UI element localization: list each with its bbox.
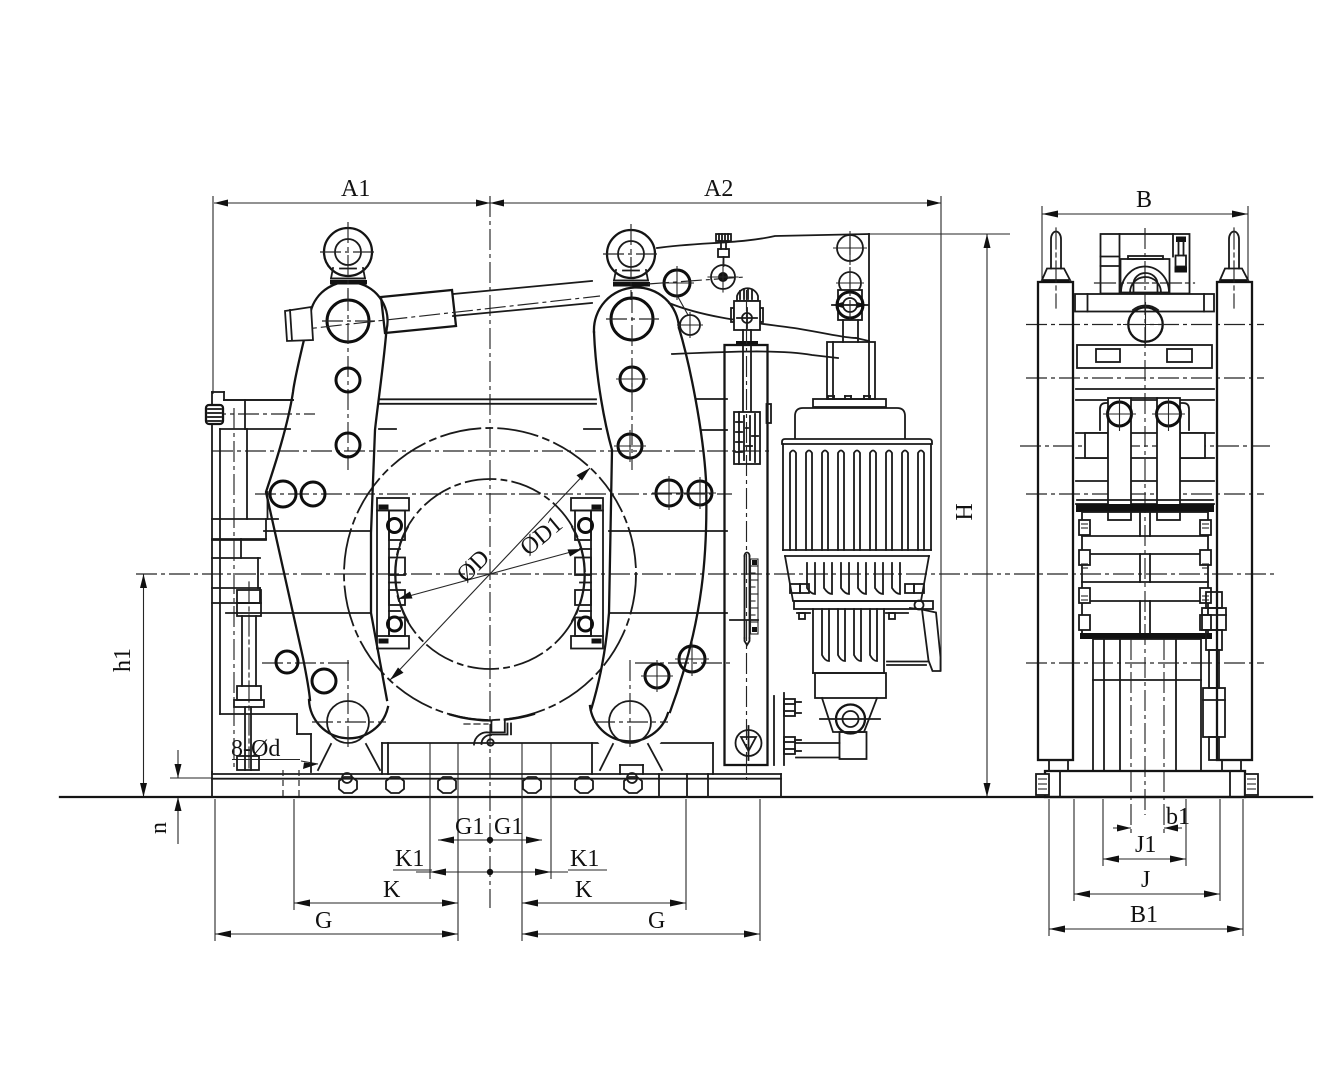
svg-text:K: K [575,877,593,903]
svg-text:B1: B1 [1130,902,1158,928]
svg-text:A2: A2 [704,176,733,202]
svg-text:n: n [146,822,172,834]
svg-text:G1: G1 [494,814,523,840]
svg-text:J: J [1141,867,1150,893]
svg-text:8-Ød: 8-Ød [231,736,280,762]
svg-text:K1: K1 [395,846,424,872]
svg-text:K1: K1 [570,846,599,872]
svg-text:G1: G1 [455,814,484,840]
svg-text:B: B [1136,187,1152,213]
svg-text:J1: J1 [1135,832,1156,858]
svg-text:H: H [952,503,978,520]
svg-text:G: G [648,908,665,934]
svg-text:A1: A1 [341,176,370,202]
svg-text:K: K [383,877,401,903]
svg-text:h1: h1 [110,648,136,672]
svg-text:G: G [315,908,332,934]
